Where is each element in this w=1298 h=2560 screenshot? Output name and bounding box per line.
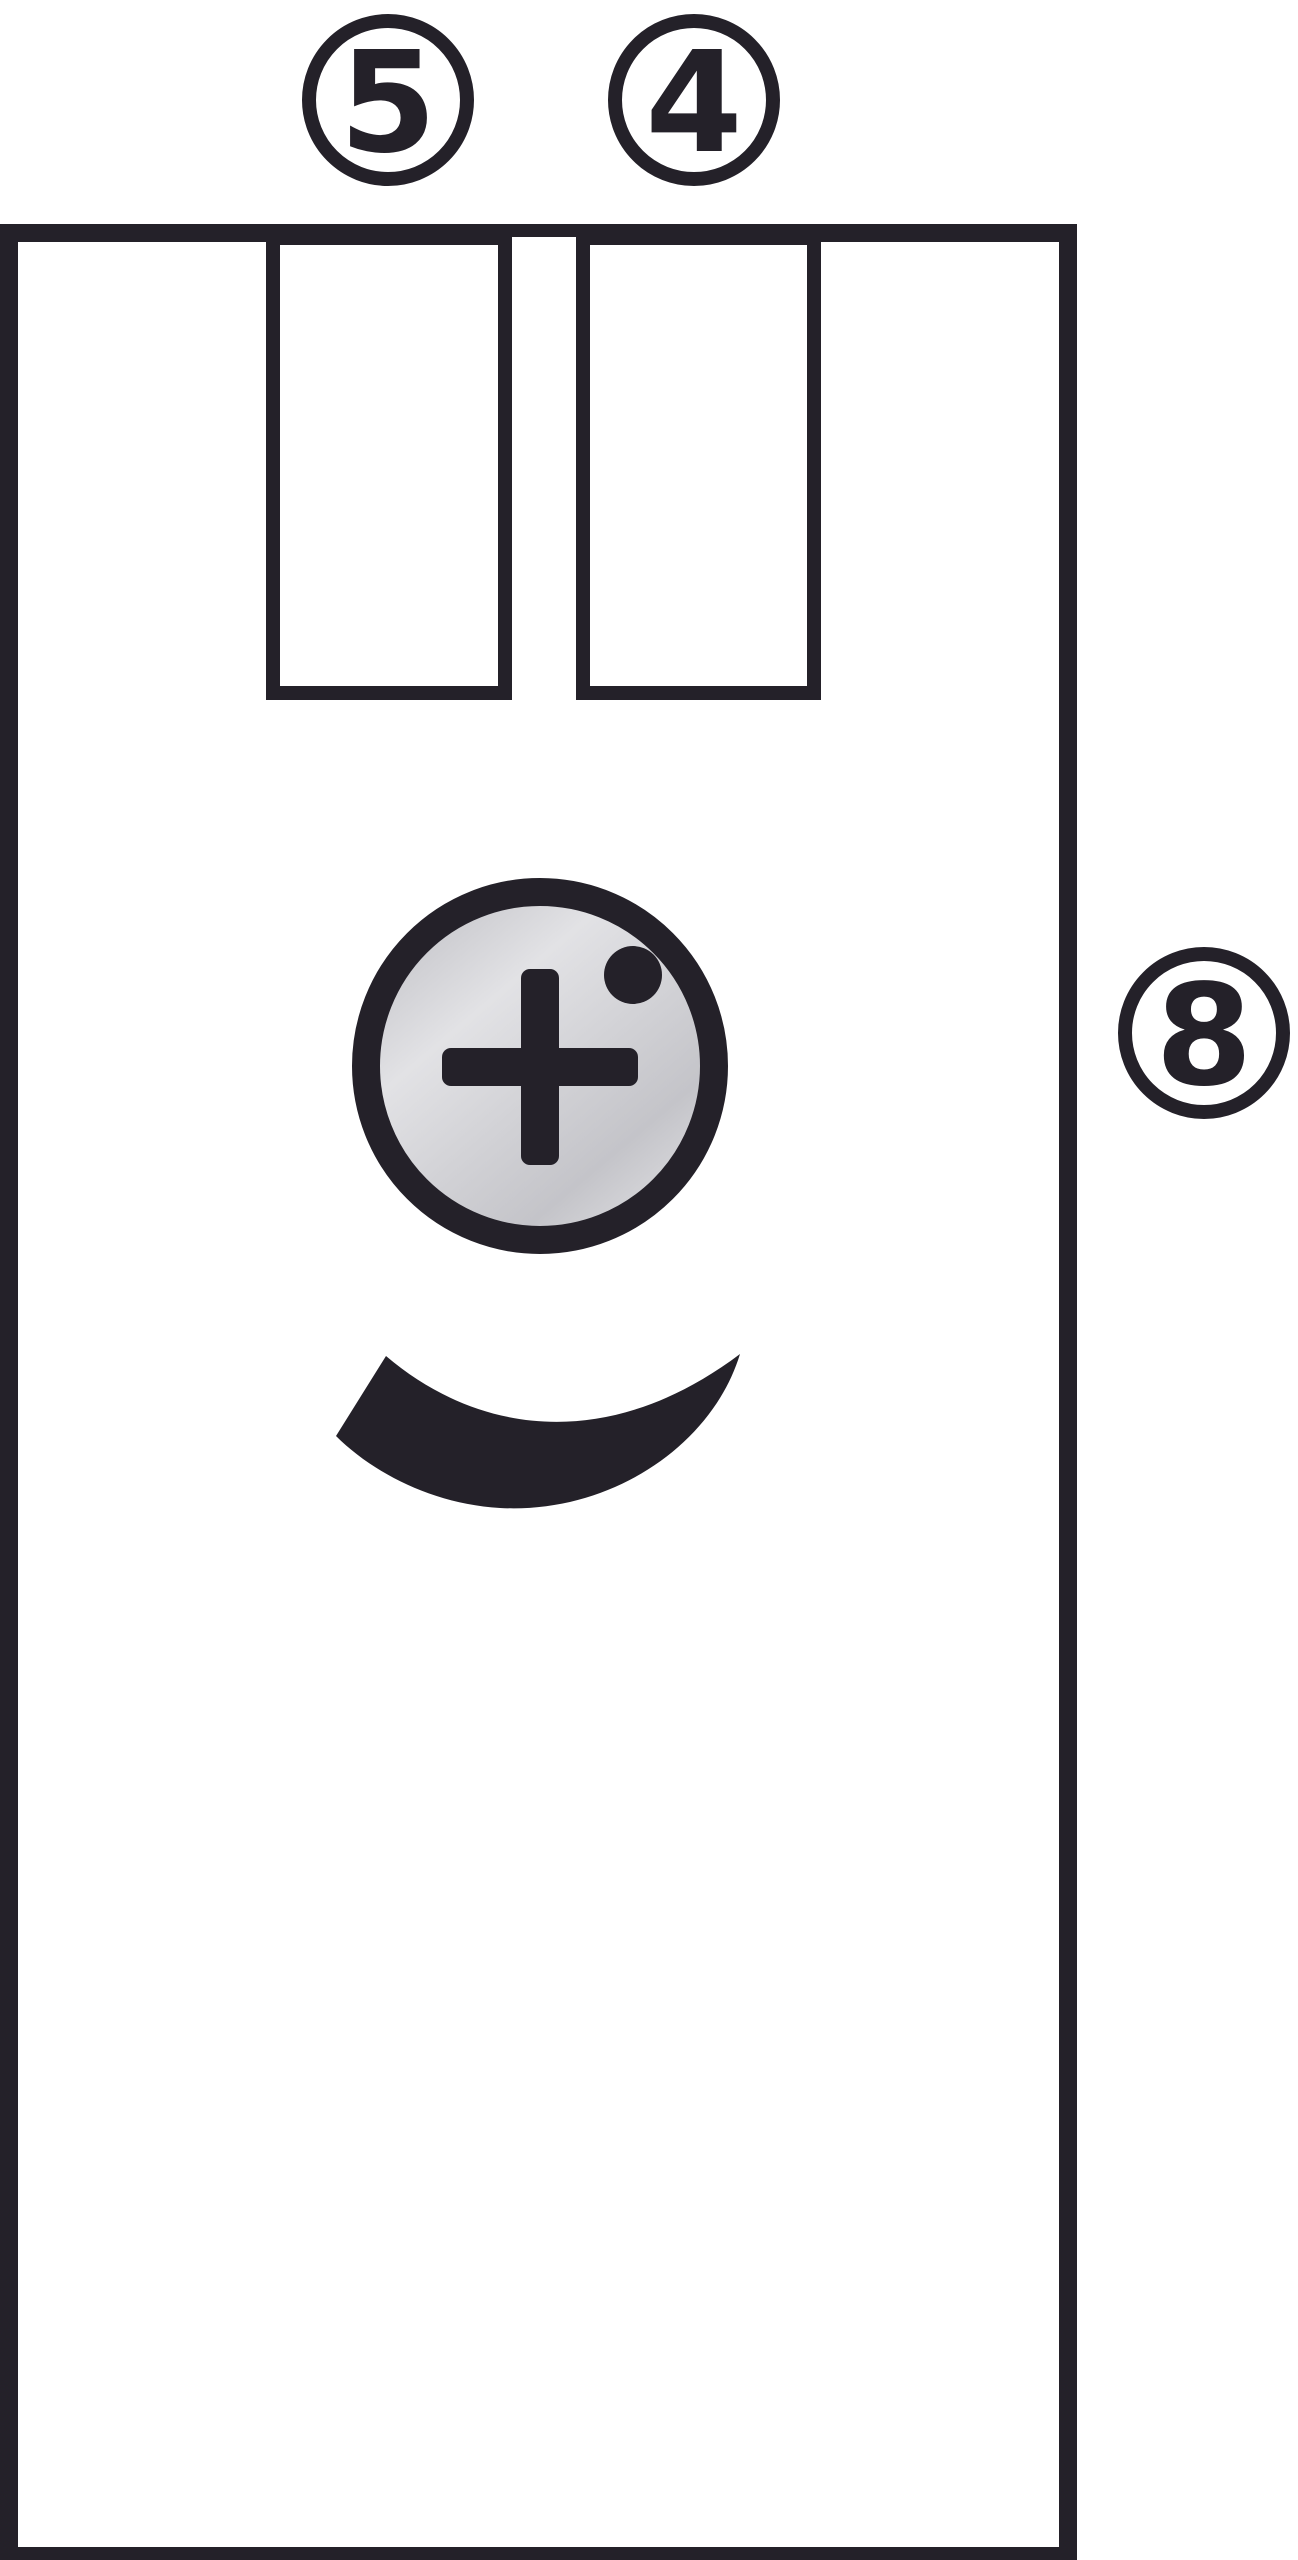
callout-4: 4 [615, 21, 773, 185]
callout-5-label: 5 [339, 22, 436, 185]
terminal-slot-right [583, 238, 814, 693]
callout-8: 8 [1125, 954, 1283, 1118]
callout-4-label: 4 [645, 22, 742, 185]
callout-5: 5 [309, 21, 467, 185]
indicator-dot-icon [604, 946, 662, 1004]
manual-illustration-page: 5 4 8 [0, 0, 1298, 2560]
device-diagram: 5 4 8 [0, 0, 1298, 2560]
top-border-notch [512, 237, 576, 250]
terminal-slot-left [273, 238, 505, 693]
callout-8-label: 8 [1155, 955, 1252, 1118]
rotation-swoosh-icon [336, 1354, 740, 1508]
device-body-outline [9, 233, 1068, 2556]
adjustment-screw [366, 892, 714, 1240]
